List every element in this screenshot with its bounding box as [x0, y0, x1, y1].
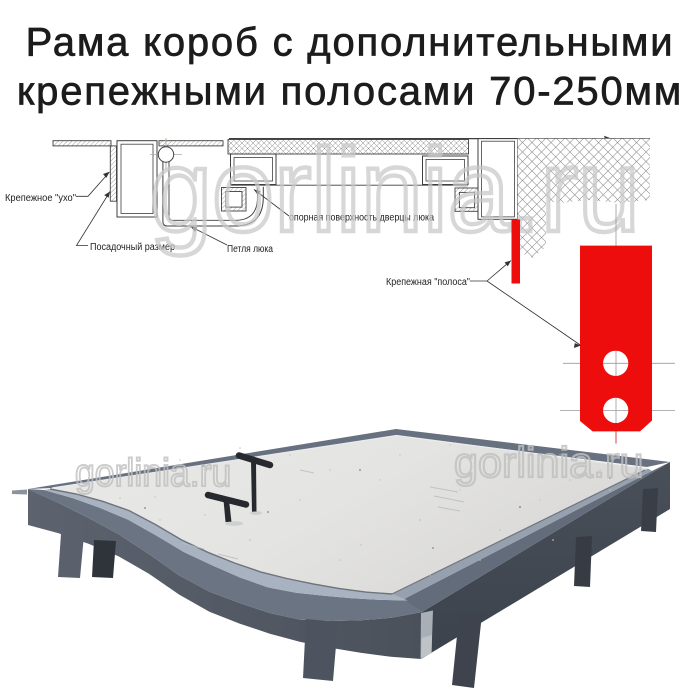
svg-text:Рама короб с дополнительными: Рама короб с дополнительными: [26, 21, 675, 65]
svg-text:крепежными полосами 70-250мм: крепежными полосами 70-250мм: [17, 70, 683, 114]
svg-text:gorlinia.ru: gorlinia.ru: [150, 124, 640, 256]
svg-text:gorlinia.ru: gorlinia.ru: [454, 439, 643, 487]
svg-text:Крепежное "ухо": Крепежное "ухо": [5, 193, 76, 204]
svg-text:Крепежная "полоса": Крепежная "полоса": [386, 277, 470, 288]
svg-text:gorlinia.ru: gorlinia.ru: [75, 452, 231, 496]
